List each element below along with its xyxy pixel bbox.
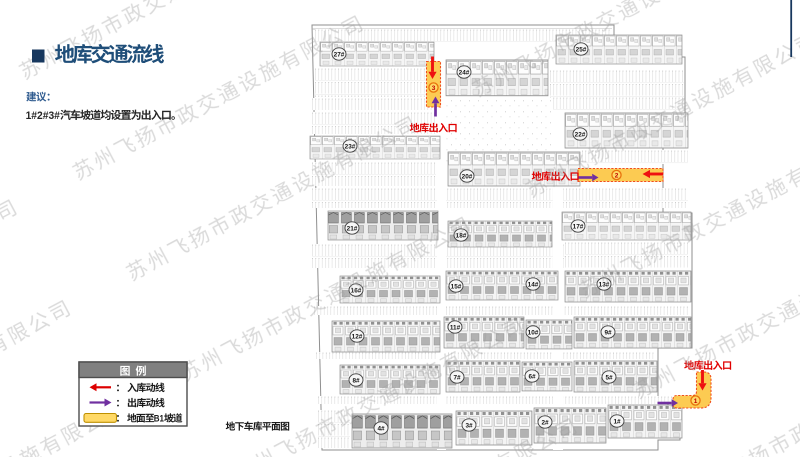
svg-text:1#2#3#: 1#2#3# [26,110,60,122]
svg-text:B1: B1 [154,412,164,423]
